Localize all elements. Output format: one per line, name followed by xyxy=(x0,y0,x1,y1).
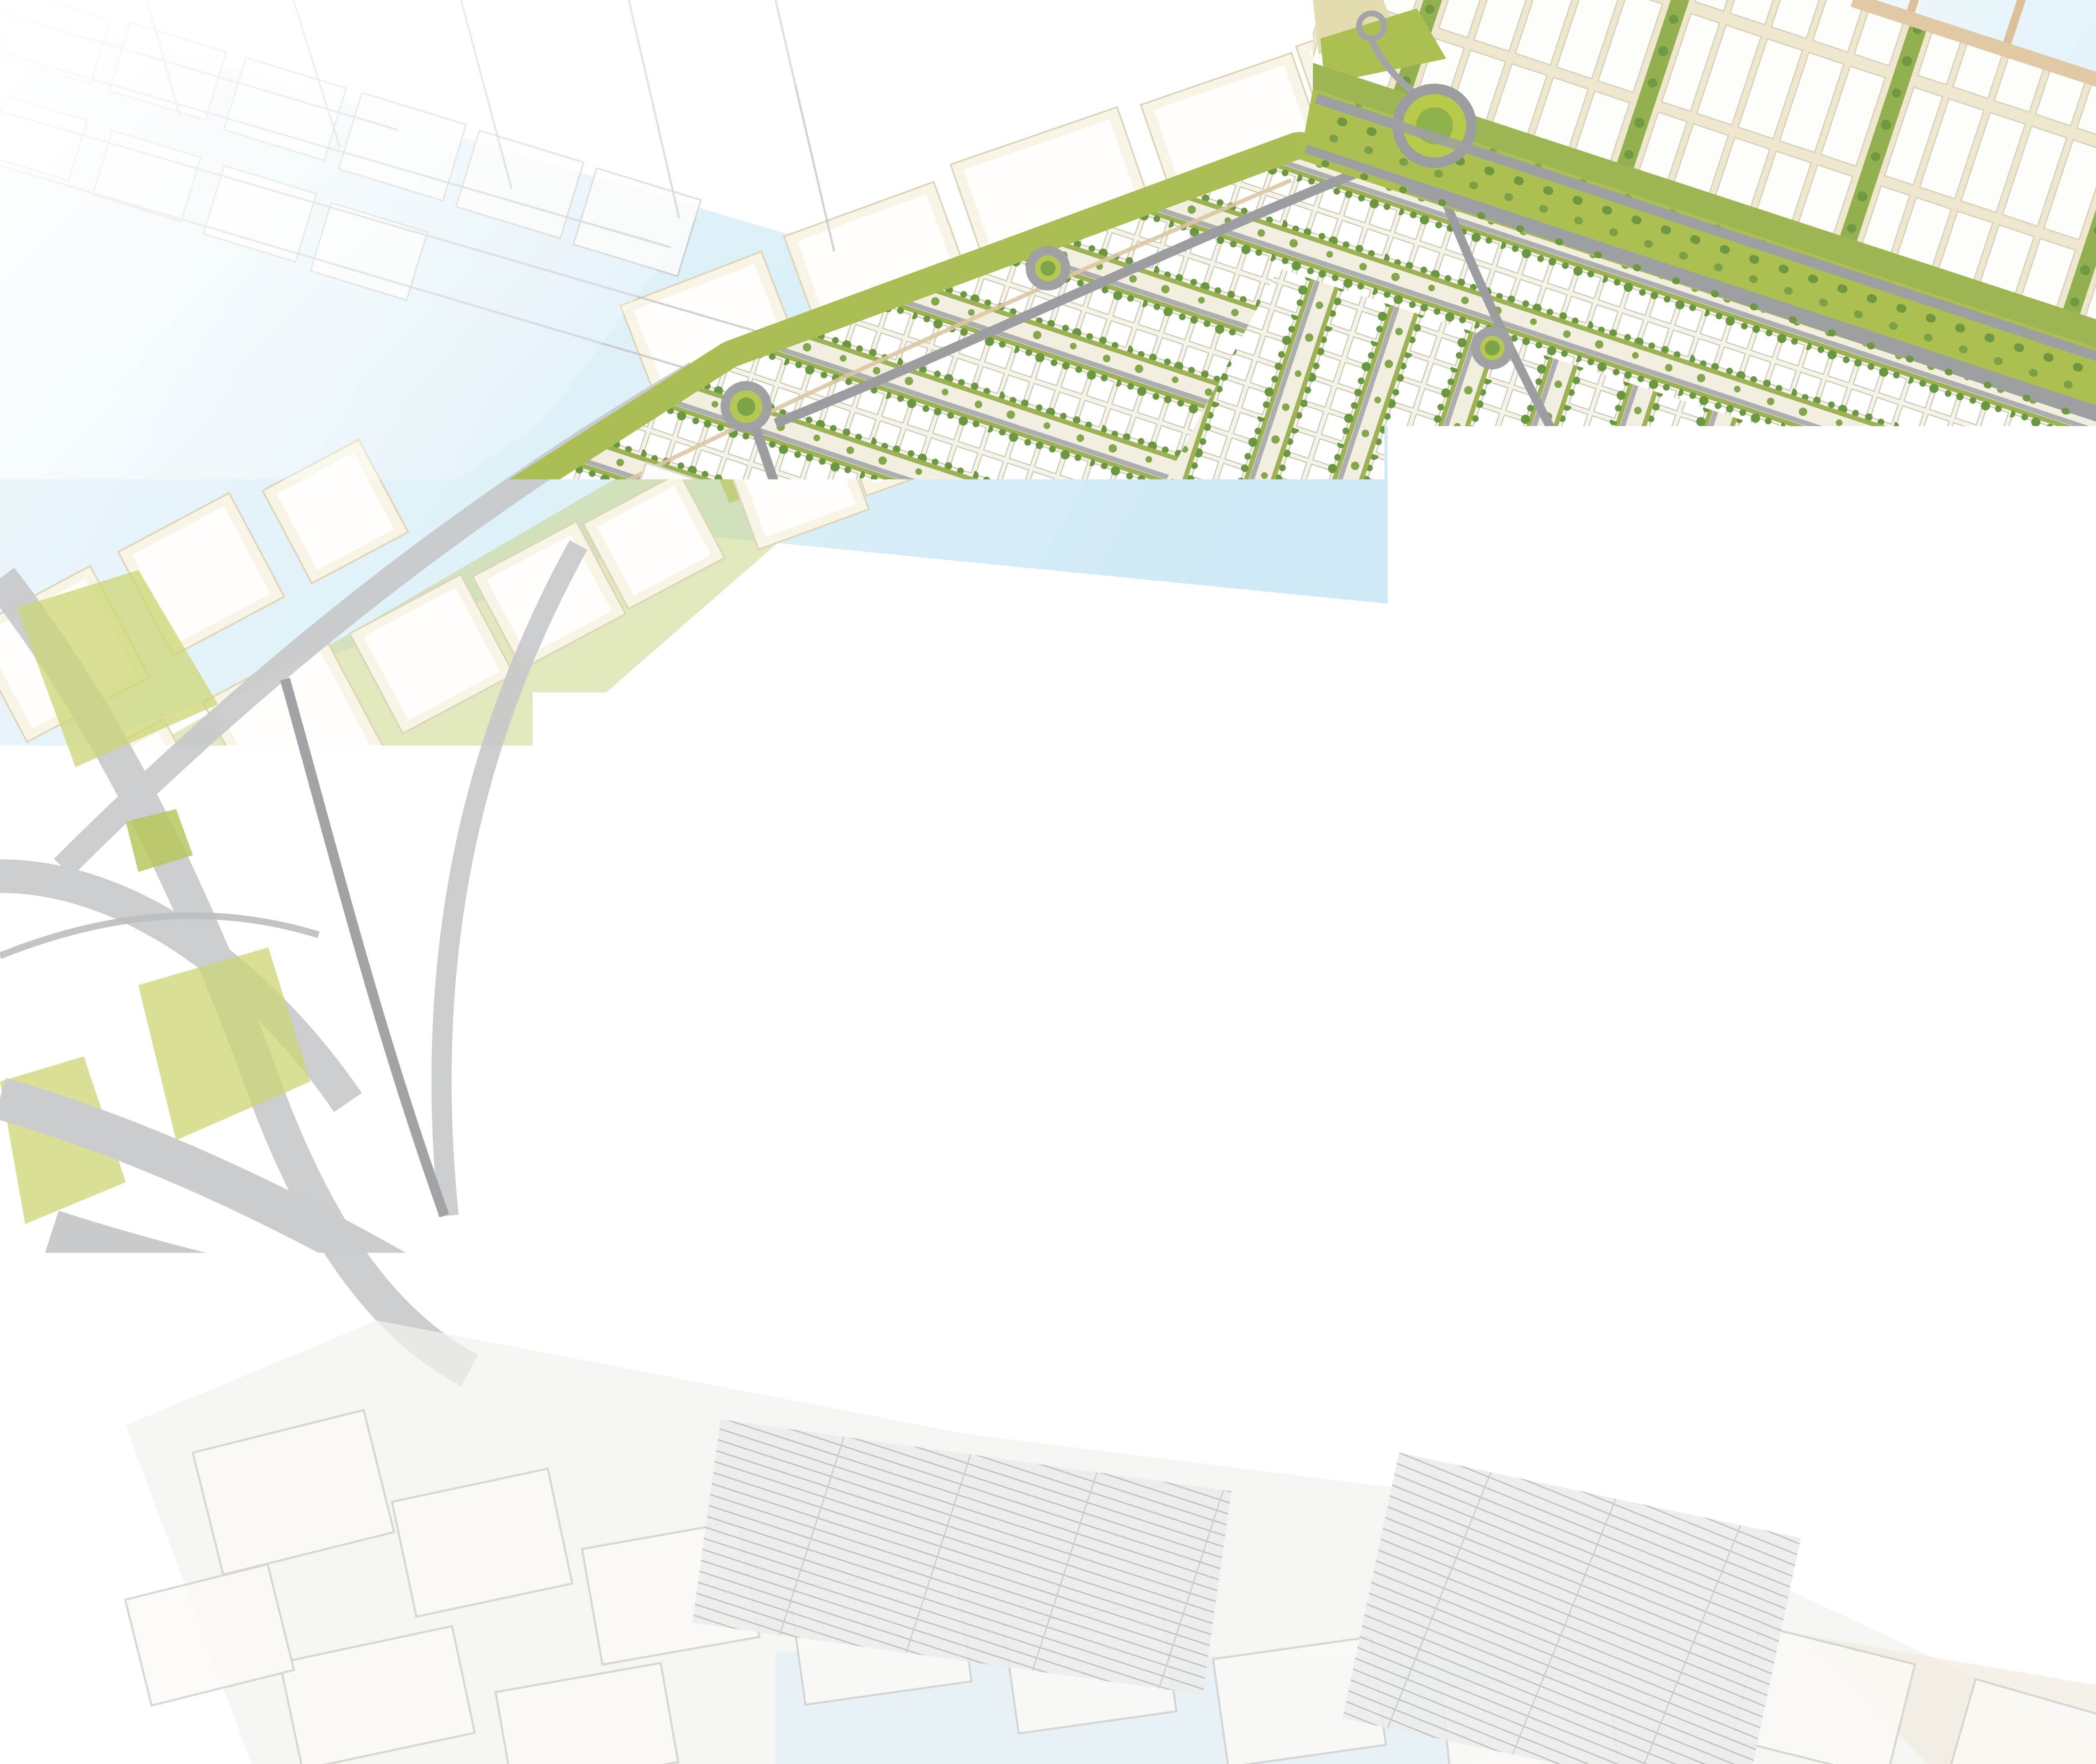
svg-text:MODON: MODON xyxy=(148,1669,254,1699)
svg-text:Wadeem: Wadeem xyxy=(276,1666,391,1701)
